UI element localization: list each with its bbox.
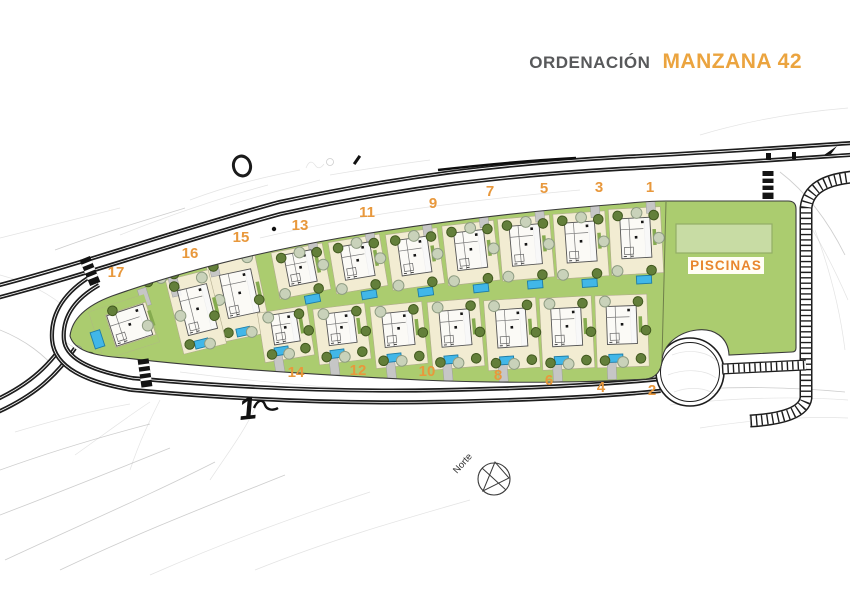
plot-number-8: 8 <box>494 367 502 384</box>
plot-number-3: 3 <box>595 179 603 196</box>
plot-number-11: 11 <box>359 204 375 221</box>
plot-number-7: 7 <box>486 183 494 200</box>
north-label: Norte <box>451 451 475 476</box>
plot-number-2: 2 <box>648 382 656 399</box>
communal-pool <box>676 224 772 253</box>
plot-number-9: 9 <box>429 195 437 212</box>
plot-number-14: 14 <box>288 364 305 381</box>
plot-number-10: 10 <box>419 363 436 380</box>
plot-number-4: 4 <box>597 379 606 396</box>
contour-glyph-o <box>231 154 252 178</box>
crossing-marker-east <box>763 171 774 199</box>
plot-number-17: 17 <box>108 264 125 281</box>
road-dot <box>272 227 276 231</box>
plot-number-15: 15 <box>233 229 250 246</box>
plot-number-13: 13 <box>292 217 309 234</box>
plot-number-1: 1 <box>646 179 654 196</box>
piscinas-label: PISCINAS <box>690 258 762 273</box>
plot-number-16: 16 <box>182 245 199 262</box>
plot-number-6: 6 <box>545 372 553 389</box>
plan-sheet: ORDENACIÓN MANZANA 42 <box>0 0 850 614</box>
communal-pool-area: PISCINAS <box>676 224 772 274</box>
site-plan-drawing: PISCINAS <box>0 0 850 614</box>
plot-number-12: 12 <box>350 362 367 379</box>
plot-number-5: 5 <box>540 180 548 197</box>
north-arrow: Norte <box>451 451 510 495</box>
